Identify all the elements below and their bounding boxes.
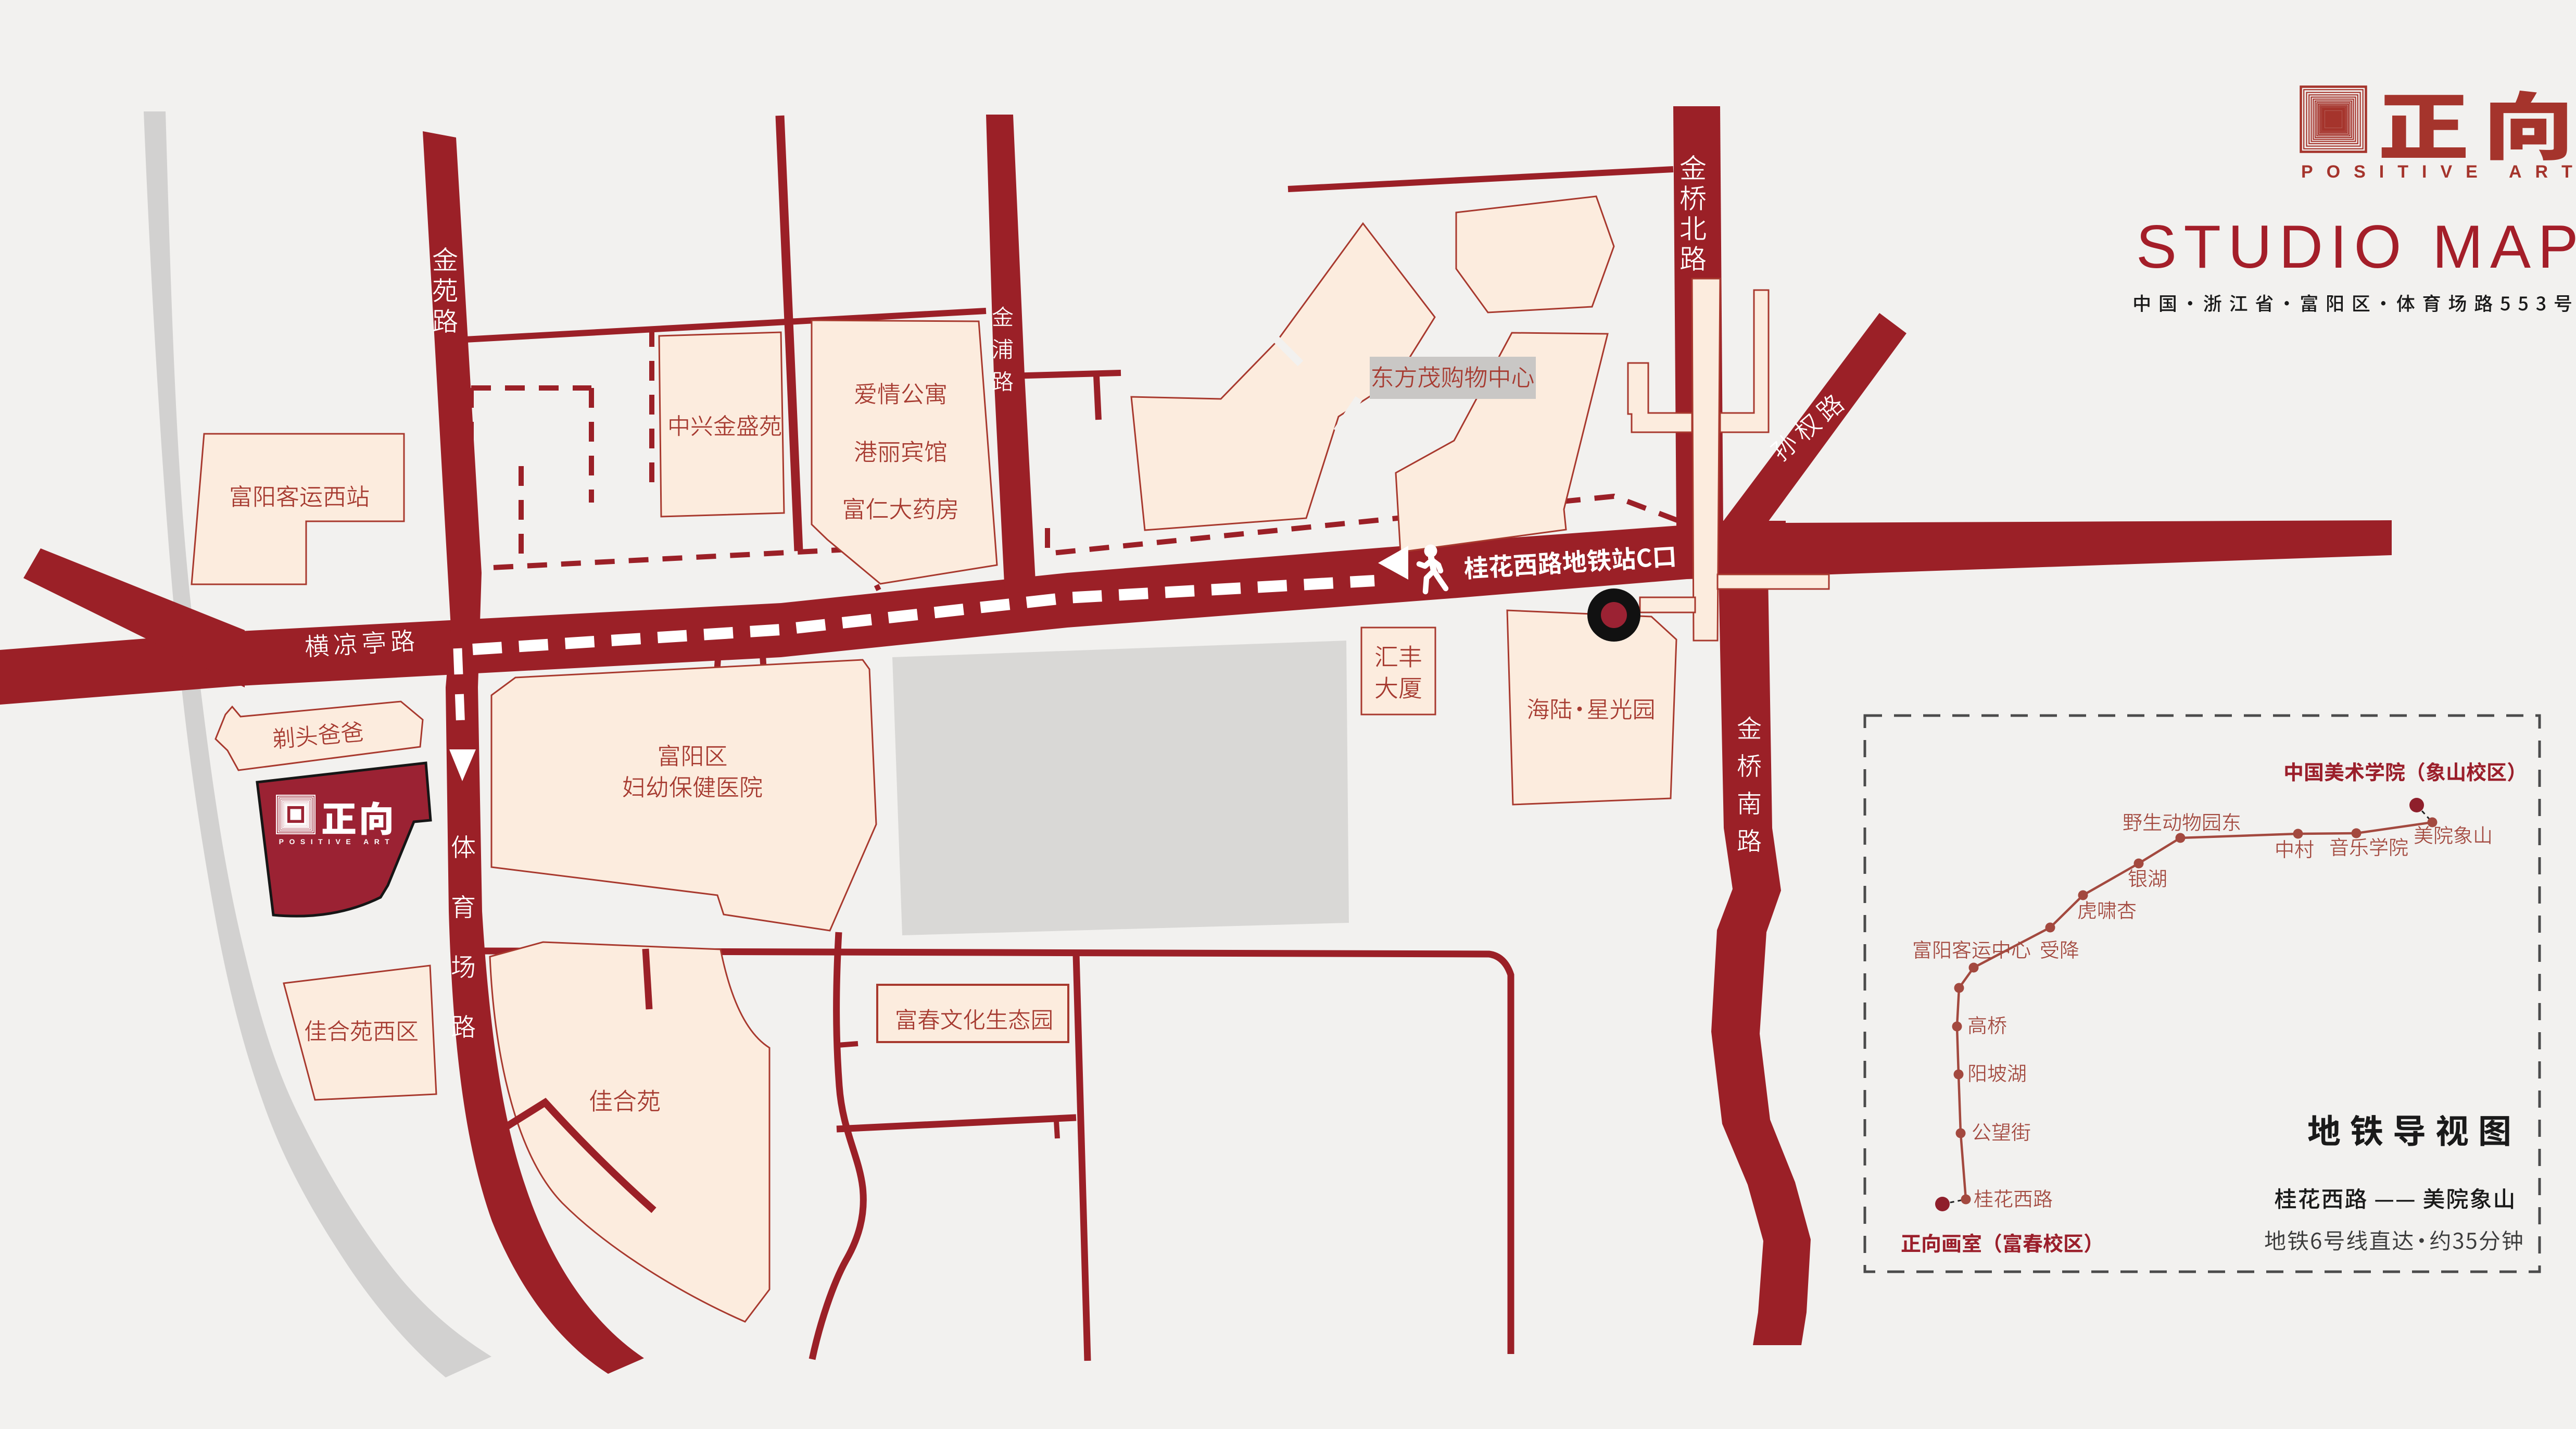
- svg-text:POSITIVE ART: POSITIVE ART: [279, 837, 395, 846]
- svg-text:STUDIO MAP: STUDIO MAP: [2136, 212, 2576, 281]
- svg-text:POSITIVE ART: POSITIVE ART: [2301, 162, 2576, 182]
